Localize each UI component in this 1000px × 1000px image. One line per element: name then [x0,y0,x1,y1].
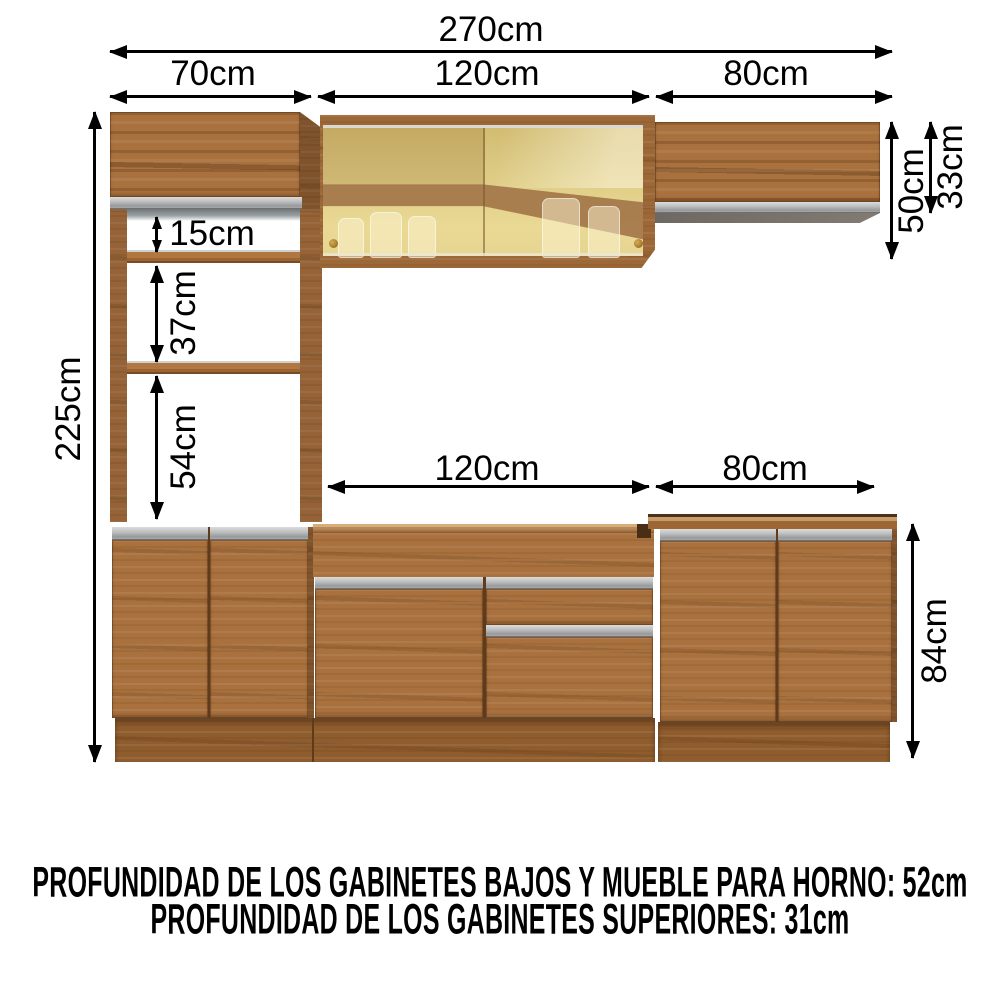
center-base-door [315,589,483,718]
center-base-drawer1 [486,589,653,625]
right-base-door1 [660,541,776,722]
dim-total-height-arrow [93,112,96,762]
dim-base-height-arrow [911,524,914,758]
glass-door-seam [483,128,485,256]
dim-gap-middle-arrow [155,266,158,362]
tower-left-frame [110,209,127,522]
dim-base-right-label: 80cm [722,449,808,489]
center-base-door-handle [315,577,483,589]
right-base-door-seam [776,529,778,722]
footer-depth-upper: PROFUNDIDAD DE LOS GABINETES SUPERIORES:… [150,896,849,945]
center-base-drawer2 [486,637,653,718]
plinth-left [115,718,655,762]
plinth-seam [312,718,314,762]
right-wall-cabinet-handle [655,202,880,213]
dim-base-center-label: 120cm [434,449,539,489]
right-base-side [892,529,897,722]
tower-base-door-right [210,540,308,718]
center-base-drawer2-handle [486,625,653,637]
tower-top-door-handle [110,197,302,209]
tower-base-handle-left [112,527,208,540]
jar-silhouette [408,216,436,258]
dim-gap-oven-arrow [155,376,158,519]
glass-door-knob-right [634,239,643,248]
tower-base-door-seam [208,527,210,718]
dim-upper-right-arrow [656,95,892,98]
center-base-top-drawer [313,533,654,577]
glass-ceiling-reflection [485,128,643,188]
glass-interior-shade [323,128,485,186]
dim-gap-middle-label: 37cm [164,270,204,356]
tower-base-door-left [112,540,208,718]
tower-right-frame [300,209,322,522]
jar-silhouette [370,212,402,258]
dim-total-height-label: 225cm [49,356,89,461]
dim-right-door-label: 33cm [931,124,971,210]
tower-top-door [110,112,300,197]
right-base-door1-handle [660,529,776,541]
dim-upper-right-label: 80cm [723,54,809,94]
right-base-door2-handle [778,529,892,541]
dim-total-width-label: 270cm [438,10,543,50]
dimension-diagram: 270cm 70cm 120cm 80cm 225cm 15cm 37cm 54… [0,0,1000,1000]
tower-side-panel [300,112,320,210]
dim-total-width-arrow [110,50,892,53]
dim-gap-top-arrow [155,217,158,252]
center-base-seam [483,577,486,718]
jar-silhouette [338,218,364,258]
dim-base-height-label: 84cm [915,598,955,684]
dim-upper-left-label: 70cm [170,54,256,94]
right-base-door2 [778,541,892,722]
plinth-right [658,722,890,762]
center-base-drawer1-handle [486,577,653,589]
dim-right-total-label: 50cm [892,148,932,234]
jar-silhouette [588,206,620,258]
right-wall-cabinet-underside [655,213,880,223]
tower-base-handle-right [210,527,308,540]
dim-upper-center-label: 120cm [434,54,539,94]
center-base-counter [313,524,654,533]
dim-upper-center-arrow [318,95,649,98]
jar-silhouette [542,198,580,258]
dim-gap-top-label: 15cm [169,214,255,254]
glass-cabinet-bottom-rail [323,253,643,256]
dim-gap-oven-label: 54cm [164,404,204,490]
dim-upper-left-arrow [110,95,311,98]
right-wall-cabinet-door [655,122,880,202]
right-base-counter [648,514,897,529]
glass-door-knob-left [329,239,338,248]
